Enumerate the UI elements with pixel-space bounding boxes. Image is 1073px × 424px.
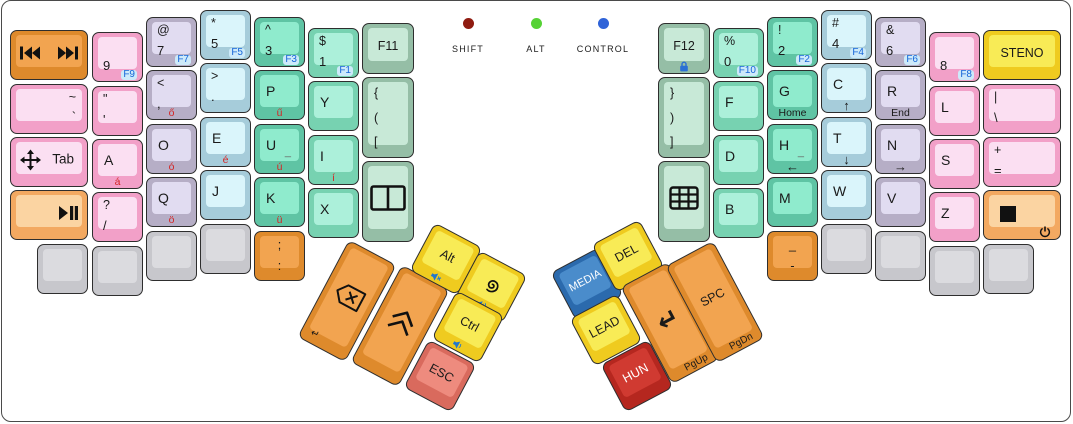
key-3-label: ^ [265, 24, 271, 37]
key-b[interactable]: B [713, 188, 764, 238]
key-plus-label: = [994, 164, 1002, 177]
key-f11-label: F11 [378, 40, 399, 53]
key-x-label: X [320, 202, 329, 216]
key-blank-2[interactable] [92, 246, 143, 296]
key-3[interactable]: ^3F3 [254, 17, 305, 67]
key-slash-label: / [103, 219, 107, 232]
key-comma[interactable]: <,ő [146, 70, 197, 120]
key-v-label: V [887, 191, 896, 205]
key-underscore[interactable]: _- [767, 231, 818, 281]
key-close-brackets[interactable]: })] [658, 77, 710, 158]
key-semicolon-label: : [278, 260, 281, 273]
key-e-label: é [223, 155, 229, 166]
key-open-brackets-label: { [374, 87, 378, 100]
key-2[interactable]: !2F2 [767, 17, 818, 67]
key-s[interactable]: S [929, 139, 980, 189]
key-z-label: Z [941, 206, 950, 220]
key-slash-label: ? [103, 199, 110, 212]
next-track-icon [58, 47, 78, 60]
key-f12[interactable]: F12 [658, 23, 710, 74]
key-open-brackets-label: ( [374, 112, 378, 125]
key-blank-8[interactable] [983, 244, 1034, 294]
key-e[interactable]: Eé [200, 117, 251, 167]
key-f[interactable]: F [713, 81, 764, 131]
key-n-label: N [887, 138, 897, 152]
keycap-face [989, 89, 1055, 121]
keycap-face [935, 251, 974, 283]
key-c-label: C [833, 77, 843, 91]
key-i-label: í [332, 173, 335, 184]
key-i-label: I [320, 149, 324, 163]
key-w[interactable]: W [821, 170, 872, 220]
key-comma-label: < [157, 77, 164, 90]
key-blank-7[interactable] [929, 246, 980, 296]
key-6-label: F6 [904, 55, 920, 65]
key-tab-label: Tab [52, 152, 74, 166]
key-f-label: F [725, 95, 734, 109]
key-7-label: @ [157, 24, 170, 37]
prev-track-icon [20, 47, 40, 60]
move-icon [20, 150, 41, 171]
key-l[interactable]: L [929, 86, 980, 136]
key-p-label: P [266, 84, 275, 98]
key-close-brackets-label: } [670, 87, 674, 100]
key-t-label: ↓ [843, 153, 850, 166]
key-underscore-label: _ [789, 239, 796, 252]
key-k-label: ü [277, 215, 283, 226]
keymap-canvas: 9F9@7F7*5F5^3F3$1F1F11~`"'<,ő>.PűY{([Tab… [0, 0, 1073, 424]
key-a[interactable]: Aá [92, 139, 143, 189]
split-window-icon [370, 185, 406, 211]
key-comma-label: ő [169, 108, 175, 119]
key-k-label: K [266, 191, 275, 205]
key-6-label: & [886, 24, 894, 37]
key-n-label: → [894, 160, 907, 173]
key-underscore-label: - [790, 260, 794, 273]
key-j-label: J [212, 184, 219, 198]
key-o[interactable]: Oó [146, 124, 197, 174]
key-pipe-label: \ [994, 111, 998, 124]
key-c-label: ↑ [843, 99, 850, 112]
key-blank-3[interactable] [146, 231, 197, 281]
key-grave-label: ` [72, 111, 76, 124]
control-indicator-label: CONTROL [563, 44, 643, 54]
key-blank-6[interactable] [875, 231, 926, 281]
key-a-label: á [115, 177, 121, 188]
key-u-label: _ [285, 147, 291, 158]
key-p-label: ű [277, 108, 283, 119]
key-6-label: 6 [886, 44, 893, 57]
key-e-label: E [212, 131, 221, 145]
keyboard-grid-icon [669, 186, 699, 210]
keycap-face [98, 251, 137, 283]
key-f12-label: F12 [673, 40, 695, 53]
keycap-face [989, 195, 1055, 227]
key-z[interactable]: Z [929, 192, 980, 242]
key-1-label: $ [319, 35, 326, 48]
key-8[interactable]: 8F8 [929, 32, 980, 82]
key-steno[interactable]: STENO [983, 30, 1061, 80]
key-steno-label: STENO [1000, 46, 1043, 59]
key-q[interactable]: Qö [146, 177, 197, 227]
key-q-label: Q [158, 191, 169, 205]
key-2-label: ! [778, 24, 781, 37]
key-split-window[interactable] [362, 161, 414, 242]
key-5-label: * [211, 17, 216, 30]
key-4-label: 4 [832, 37, 839, 50]
control-indicator-dot [598, 18, 609, 29]
key-0-label: F10 [737, 66, 758, 76]
lock-icon [679, 61, 689, 72]
key-2-label: F2 [796, 55, 812, 65]
play-pause-icon [59, 206, 78, 220]
key-1-label: 1 [319, 55, 326, 68]
key-r-label: End [891, 108, 910, 119]
key-close-brackets-label: ] [670, 136, 673, 149]
key-9-label: F9 [121, 70, 137, 80]
key-9-label: 9 [103, 59, 110, 72]
key-play-pause[interactable] [10, 190, 88, 240]
key-l-label: L [941, 100, 949, 114]
key-r[interactable]: REnd [875, 70, 926, 120]
key-u-label: U [266, 138, 276, 152]
key-7[interactable]: @7F7 [146, 17, 197, 67]
key-open-brackets[interactable]: {([ [362, 77, 414, 158]
key-7-label: 7 [157, 44, 164, 57]
key-g[interactable]: GHome [767, 70, 818, 120]
key-o-label: ó [169, 162, 175, 173]
key-d-label: D [725, 149, 735, 163]
keycap-face [827, 229, 866, 261]
key-m-label: M [779, 191, 791, 205]
key-m[interactable]: M [767, 177, 818, 227]
key-quote-label: ' [103, 113, 105, 126]
key-r-label: R [887, 84, 897, 98]
key-j[interactable]: J [200, 170, 251, 220]
keycap-face [206, 229, 245, 261]
key-n[interactable]: N→ [875, 124, 926, 174]
key-slash[interactable]: ?/ [92, 192, 143, 242]
key-9[interactable]: 9F9 [92, 32, 143, 82]
key-blank-5[interactable] [821, 224, 872, 274]
key-0-label: % [724, 35, 735, 48]
key-period-label: > [211, 70, 218, 83]
key-blank-4[interactable] [200, 224, 251, 274]
key-6[interactable]: &6F6 [875, 17, 926, 67]
key-f11[interactable]: F11 [362, 23, 414, 74]
alt-indicator-dot [531, 18, 542, 29]
key-1[interactable]: $1F1 [308, 28, 359, 78]
key-q-label: ö [169, 215, 175, 226]
key-g-label: Home [778, 108, 806, 119]
key-c[interactable]: C↑ [821, 63, 872, 113]
key-blank-1[interactable] [37, 244, 88, 294]
key-3-label: F3 [283, 55, 299, 65]
control-indicator: CONTROL [563, 16, 643, 54]
key-open-brackets-label: [ [374, 136, 377, 149]
key-stop[interactable] [983, 190, 1061, 240]
key-s-label: S [941, 153, 950, 167]
key-t[interactable]: T↓ [821, 117, 872, 167]
key-3-label: 3 [265, 44, 272, 57]
keycap-face [152, 236, 191, 268]
stop-icon [1000, 206, 1016, 222]
key-1-label: F1 [337, 66, 353, 76]
key-comma-label: , [157, 97, 161, 110]
power-icon [1039, 226, 1051, 238]
key-2-label: 2 [778, 44, 785, 57]
key-d[interactable]: D [713, 135, 764, 185]
key-p[interactable]: Pű [254, 70, 305, 120]
keycap-face [881, 236, 920, 268]
key-4-label: # [832, 17, 839, 30]
key-8-label: 8 [940, 59, 947, 72]
key-h[interactable]: H_← [767, 124, 818, 174]
keycap-face [43, 249, 82, 281]
key-semicolon[interactable]: ;: [254, 231, 305, 281]
key-quote[interactable]: "' [92, 86, 143, 136]
key-k[interactable]: Kü [254, 177, 305, 227]
key-plus[interactable]: += [983, 137, 1061, 187]
key-tab[interactable]: Tab [10, 137, 88, 187]
key-grave[interactable]: ~` [10, 84, 88, 134]
key-0[interactable]: %0F10 [713, 28, 764, 78]
key-0-label: 0 [724, 55, 731, 68]
key-pipe[interactable]: |\ [983, 84, 1061, 134]
key-prev-next-track[interactable] [10, 30, 88, 80]
key-u[interactable]: U_ú [254, 124, 305, 174]
key-7-label: F7 [175, 55, 191, 65]
key-5-label: 5 [211, 37, 218, 50]
key-4[interactable]: #4F4 [821, 10, 872, 60]
key-v[interactable]: V [875, 177, 926, 227]
key-backspace-label: ↵ [309, 328, 321, 341]
key-keyboard-grid[interactable] [658, 161, 710, 242]
key-w-label: W [833, 184, 846, 198]
key-5-label: F5 [229, 48, 245, 58]
key-u-label: ú [277, 162, 283, 173]
key-pipe-label: | [994, 91, 997, 104]
key-o-label: O [158, 138, 169, 152]
key-4-label: F4 [850, 48, 866, 58]
key-y[interactable]: Y [308, 81, 359, 131]
key-h-label: ← [786, 160, 799, 173]
key-8-label: F8 [958, 70, 974, 80]
key-t-label: T [833, 131, 842, 145]
key-x[interactable]: X [308, 188, 359, 238]
key-i[interactable]: Ií [308, 135, 359, 185]
key-period[interactable]: >. [200, 63, 251, 113]
key-g-label: G [779, 84, 790, 98]
key-h-label: _ [798, 147, 804, 158]
key-a-label: A [104, 153, 113, 167]
key-semicolon-label: ; [278, 239, 281, 252]
key-5[interactable]: *5F5 [200, 10, 251, 60]
key-y-label: Y [320, 95, 329, 109]
keycap-face [989, 249, 1028, 281]
shift-indicator-dot [463, 18, 474, 29]
key-h-label: H [779, 138, 789, 152]
key-period-label: . [211, 90, 215, 103]
key-grave-label: ~ [69, 91, 76, 104]
key-b-label: B [725, 202, 734, 216]
key-plus-label: + [994, 144, 1001, 157]
key-close-brackets-label: ) [670, 112, 674, 125]
key-quote-label: " [103, 93, 107, 106]
